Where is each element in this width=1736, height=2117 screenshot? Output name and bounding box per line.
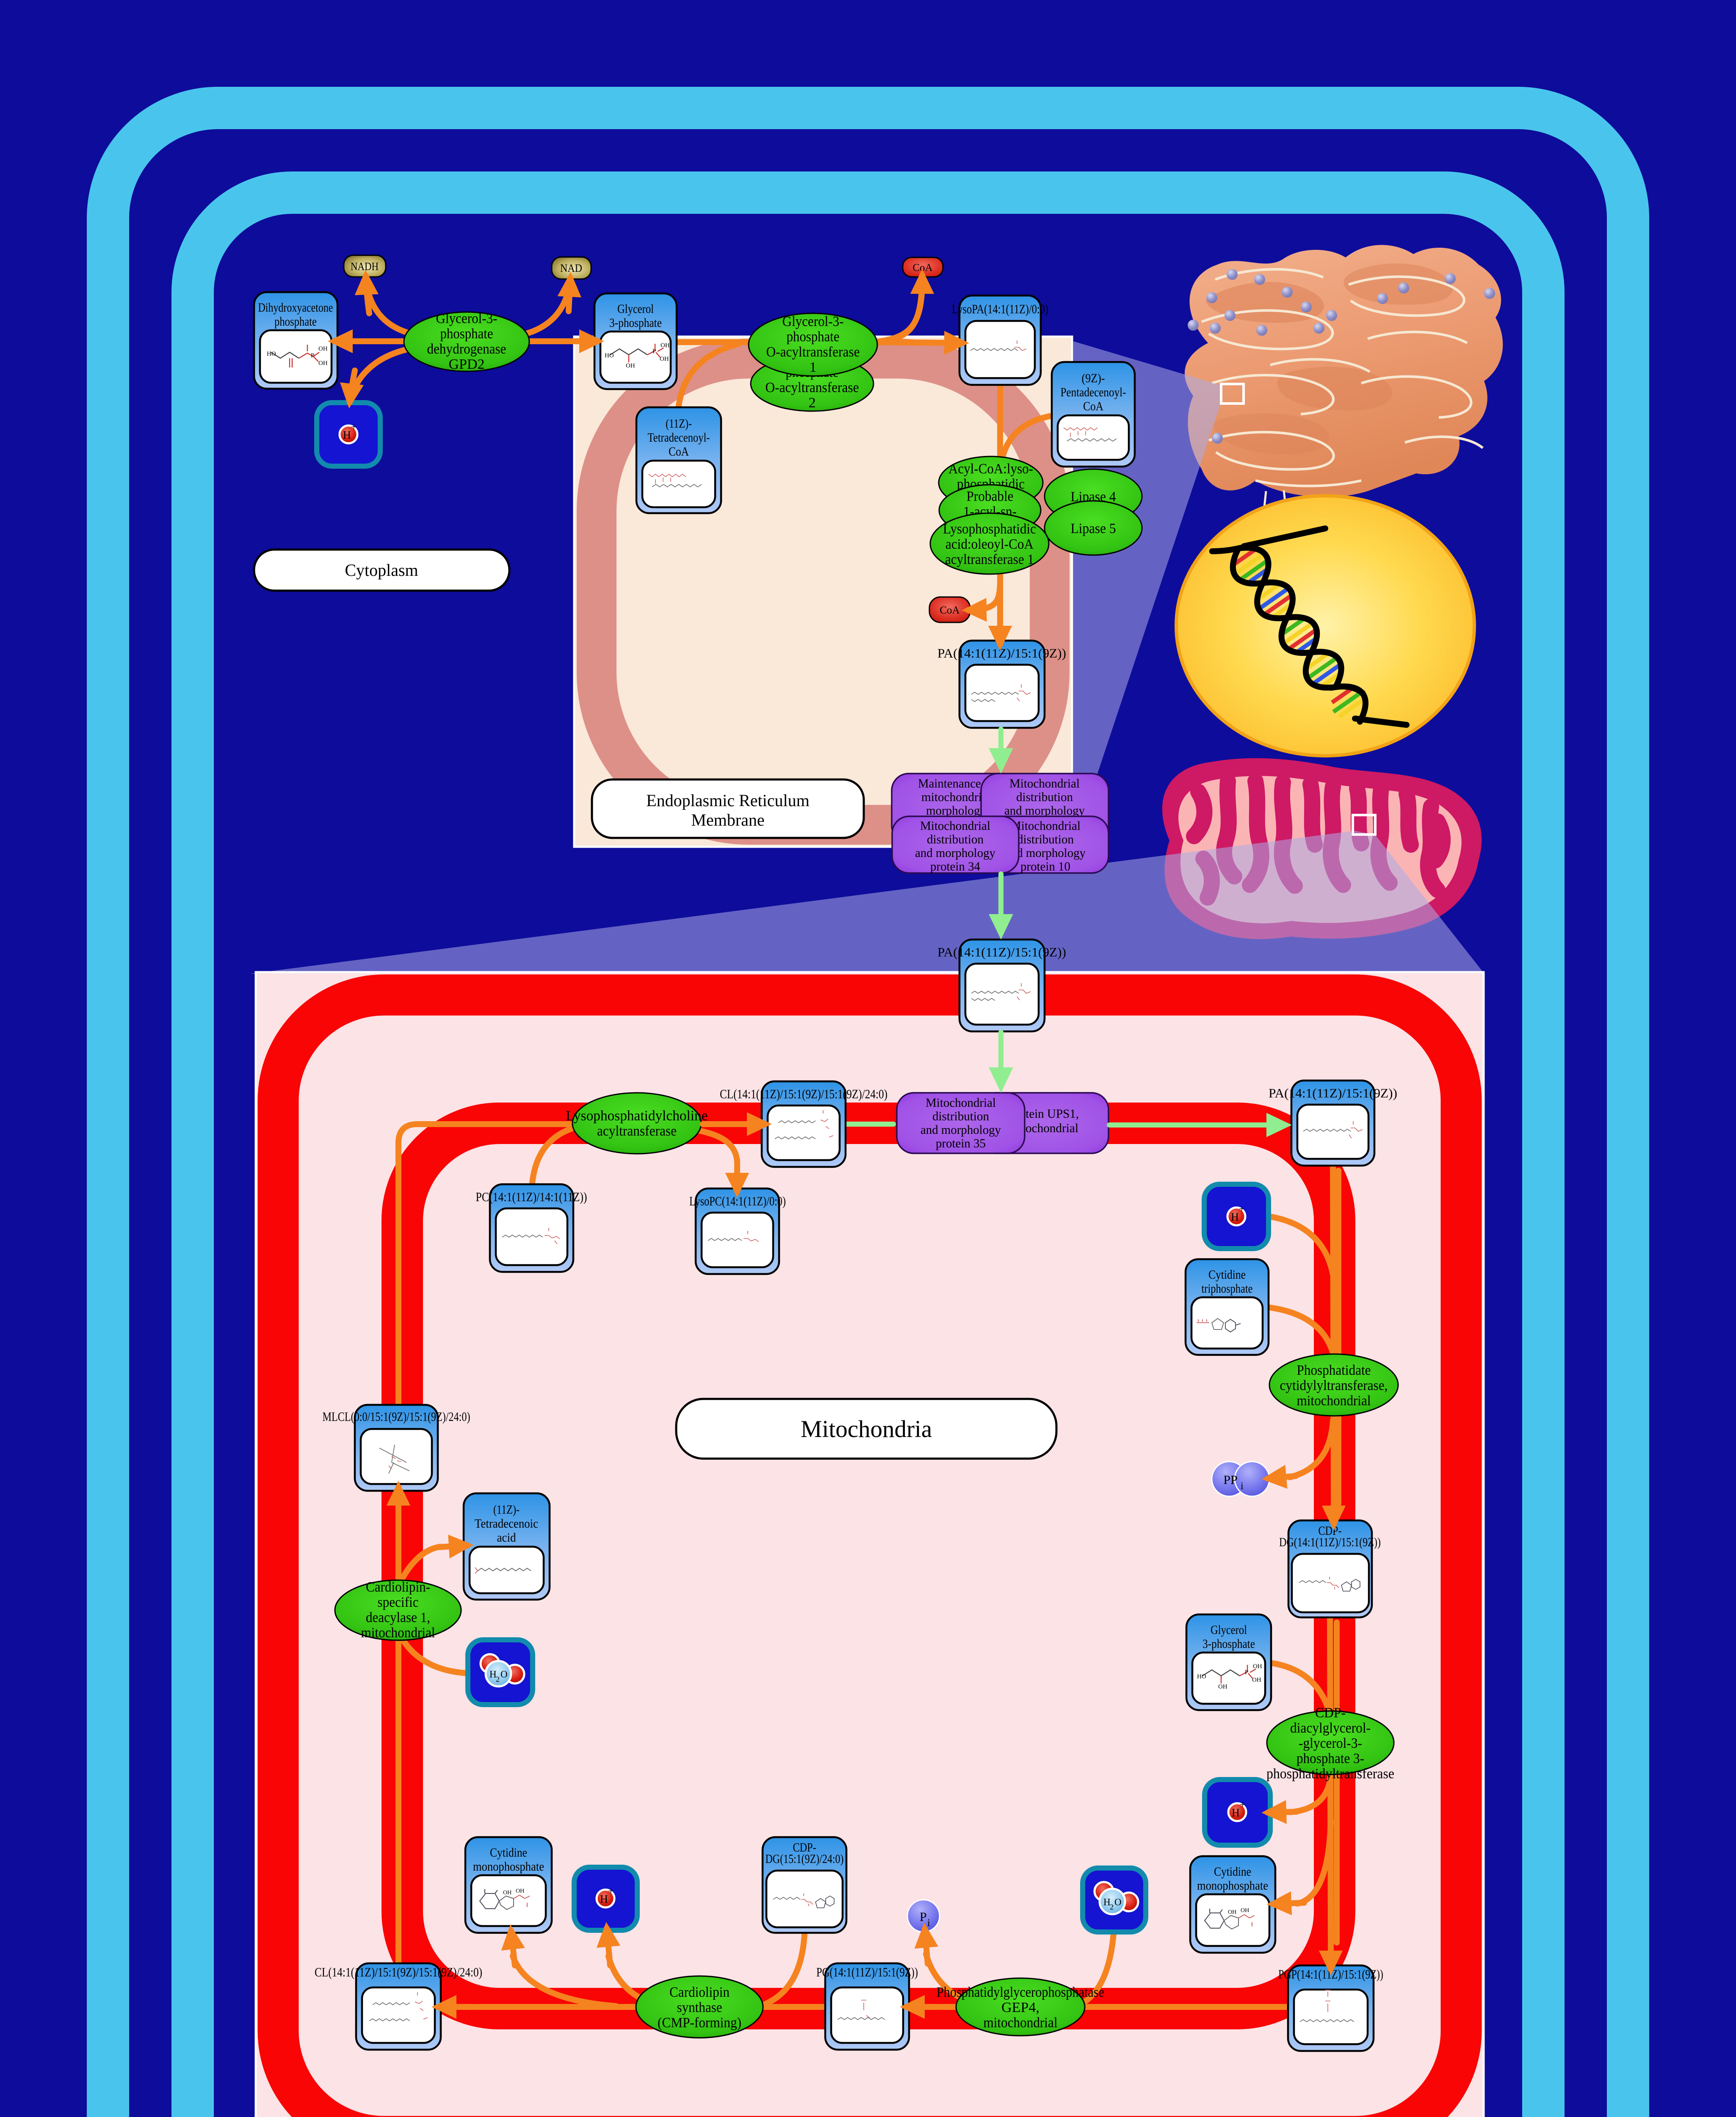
svg-text:phosphate: phosphate (787, 329, 840, 345)
svg-text:GEP4,: GEP4, (1001, 2000, 1039, 2015)
svg-text:HO: HO (267, 351, 276, 357)
svg-text:phosphate: phosphate (440, 326, 493, 342)
svg-text:O-acyltransferase: O-acyltransferase (766, 380, 859, 395)
svg-text:+: + (1240, 1799, 1246, 1810)
svg-text:phosphate: phosphate (274, 315, 317, 329)
svg-text:(CMP-forming): (CMP-forming) (658, 2015, 741, 2031)
svg-text:specific: specific (378, 1595, 419, 1610)
svg-text:distribution: distribution (927, 832, 984, 846)
svg-text:O: O (500, 1669, 508, 1680)
svg-text:monophosphate: monophosphate (1197, 1879, 1268, 1893)
svg-text:and morphology: and morphology (921, 1123, 1001, 1137)
svg-text:P: P (652, 348, 656, 355)
svg-text:OH: OH (1218, 1683, 1227, 1690)
svg-text:mitochondrial: mitochondrial (361, 1625, 435, 1641)
svg-text:phosphate 3-: phosphate 3- (1296, 1751, 1364, 1766)
svg-text:OH: OH (661, 342, 670, 349)
svg-text:distribution: distribution (1016, 790, 1073, 804)
svg-text:PA(14:1(11Z)/15:1(9Z)): PA(14:1(11Z)/15:1(9Z)) (1269, 1086, 1397, 1100)
svg-text:Tetradecenoic: Tetradecenoic (475, 1517, 538, 1531)
svg-text:-glycerol-3-: -glycerol-3- (1299, 1736, 1362, 1751)
svg-text:distribution: distribution (932, 1109, 989, 1123)
svg-text:Probable: Probable (967, 489, 1014, 504)
svg-text:Mitochondrial: Mitochondrial (926, 1096, 996, 1110)
svg-text:H: H (343, 429, 351, 441)
svg-text:acid: acid (497, 1531, 516, 1545)
svg-text:P: P (311, 352, 314, 359)
svg-text:CoA: CoA (669, 445, 689, 459)
svg-text:PG(14:1(11Z)/15:1(9Z)): PG(14:1(11Z)/15:1(9Z)) (816, 1965, 918, 1979)
svg-text:LysoPA(14:1(11Z)/0:0): LysoPA(14:1(11Z)/0:0) (952, 301, 1048, 316)
svg-text:morphology: morphology (926, 804, 986, 818)
svg-text:O: O (1114, 1897, 1122, 1907)
svg-text:distribution: distribution (1017, 832, 1074, 846)
svg-text:Endoplasmic Reticulum: Endoplasmic Reticulum (646, 791, 810, 810)
svg-text:3-phosphate: 3-phosphate (1202, 1637, 1255, 1651)
svg-text:HO: HO (605, 352, 614, 359)
svg-text:and morphology: and morphology (1004, 804, 1085, 818)
svg-text:Phosphatidylglycerophosphatase: Phosphatidylglycerophosphatase (937, 1984, 1104, 2000)
svg-text:2: 2 (809, 395, 816, 411)
svg-text:synthase: synthase (677, 2000, 722, 2015)
svg-text:acid:oleoyl-CoA: acid:oleoyl-CoA (945, 536, 1034, 552)
svg-text:PA(14:1(11Z)/15:1(9Z)): PA(14:1(11Z)/15:1(9Z)) (937, 646, 1066, 661)
svg-text:+: + (1239, 1204, 1245, 1215)
svg-text:Glycerol-3-: Glycerol-3- (782, 314, 844, 329)
svg-text:OH: OH (503, 1890, 511, 1896)
svg-text:(11Z)-: (11Z)- (493, 1503, 520, 1517)
svg-text:(11Z)-: (11Z)- (666, 417, 692, 431)
svg-text:protein 35: protein 35 (936, 1136, 986, 1150)
svg-text:acyltransferase 1: acyltransferase 1 (945, 552, 1034, 567)
svg-text:dehydrogenase: dehydrogenase (427, 341, 506, 357)
svg-text:Mitochondrial: Mitochondrial (1010, 819, 1081, 833)
svg-text:HO: HO (1197, 1673, 1206, 1680)
svg-text:diacylglycerol-: diacylglycerol- (1290, 1720, 1371, 1736)
svg-text:Cytidine: Cytidine (1214, 1865, 1251, 1879)
svg-text:Glycerol: Glycerol (1211, 1623, 1247, 1637)
svg-text:i: i (927, 1918, 930, 1929)
svg-text:H: H (1232, 1807, 1240, 1819)
svg-text:monophosphate: monophosphate (473, 1860, 544, 1874)
svg-text:+: + (608, 1886, 614, 1897)
svg-text:LysoPC(14:1(11Z)/0:0): LysoPC(14:1(11Z)/0:0) (689, 1194, 786, 1208)
svg-text:CoA: CoA (1083, 399, 1103, 413)
svg-text:Mitochondrial: Mitochondrial (1009, 777, 1080, 790)
svg-text:GPD2: GPD2 (448, 357, 484, 372)
svg-text:protein 34: protein 34 (930, 860, 980, 873)
svg-text:PP: PP (1223, 1473, 1237, 1487)
svg-text:Cardiolipin-: Cardiolipin- (366, 1579, 430, 1595)
svg-text:MLCL(0:0/15:1(9Z)/15:1(9Z)/24:: MLCL(0:0/15:1(9Z)/15:1(9Z)/24:0) (323, 1409, 470, 1424)
svg-text:P: P (1245, 1669, 1248, 1676)
svg-text:3-phosphate: 3-phosphate (609, 316, 662, 330)
svg-text:Mitochondria: Mitochondria (801, 1416, 932, 1443)
svg-text:mitochondrial: mitochondrial (984, 2015, 1058, 2031)
svg-text:phosphatidyltransferase: phosphatidyltransferase (1266, 1766, 1394, 1782)
svg-text:Acyl-CoA:lyso-: Acyl-CoA:lyso- (948, 461, 1033, 477)
svg-text:NAD: NAD (560, 262, 582, 274)
svg-text:OH: OH (318, 360, 328, 367)
svg-text:Lipase 5: Lipase 5 (1071, 521, 1116, 536)
svg-text:CoA: CoA (940, 605, 959, 616)
svg-text:Phosphatidate: Phosphatidate (1297, 1363, 1371, 1378)
svg-text:Mitochondrial: Mitochondrial (920, 819, 990, 833)
svg-text:Tetradecenoyl-: Tetradecenoyl- (648, 431, 710, 445)
svg-text:DG(14:1(11Z)/15:1(9Z)): DG(14:1(11Z)/15:1(9Z)) (1279, 1535, 1381, 1549)
svg-text:Cardiolipin: Cardiolipin (669, 1984, 730, 2000)
svg-text:mitochondrial: mitochondrial (1297, 1393, 1371, 1409)
svg-text:OH: OH (318, 345, 328, 352)
svg-text:OH: OH (1228, 1909, 1236, 1915)
svg-text:H: H (600, 1893, 608, 1905)
svg-text:CoA: CoA (912, 262, 932, 274)
svg-text:PC(14:1(11Z)/14:1(11Z)): PC(14:1(11Z)/14:1(11Z)) (476, 1189, 587, 1204)
svg-text:OH: OH (1252, 1677, 1261, 1683)
svg-text:CDP-: CDP- (1315, 1705, 1346, 1721)
svg-text:triphosphate: triphosphate (1202, 1282, 1253, 1296)
svg-text:Lysophosphatidic: Lysophosphatidic (943, 521, 1036, 537)
svg-text:+: + (351, 422, 357, 433)
svg-text:acyltransferase: acyltransferase (597, 1123, 677, 1139)
svg-text:OH: OH (1253, 1663, 1262, 1670)
svg-text:Dihydroxyacetone: Dihydroxyacetone (258, 301, 333, 315)
svg-text:CL(14:1(11Z)/15:1(9Z)/15:1(9Z): CL(14:1(11Z)/15:1(9Z)/15:1(9Z)/24:0) (315, 1965, 482, 1979)
svg-text:OH: OH (626, 362, 635, 369)
svg-text:Pentadecenoyl-: Pentadecenoyl- (1061, 385, 1126, 399)
svg-text:PA(14:1(11Z)/15:1(9Z)): PA(14:1(11Z)/15:1(9Z)) (937, 945, 1066, 959)
svg-text:Cytoplasm: Cytoplasm (345, 561, 418, 580)
svg-text:P: P (920, 1910, 927, 1924)
svg-text:NADH: NADH (351, 260, 379, 273)
svg-text:(9Z)-: (9Z)- (1082, 371, 1105, 385)
svg-text:Lysophosphatidylcholine: Lysophosphatidylcholine (566, 1108, 708, 1124)
svg-text:Membrane: Membrane (691, 810, 764, 829)
svg-text:Glycerol: Glycerol (617, 302, 654, 316)
svg-text:DG(15:1(9Z)/24:0): DG(15:1(9Z)/24:0) (766, 1852, 844, 1866)
svg-text:and morphology: and morphology (915, 846, 995, 860)
svg-text:H: H (1231, 1211, 1239, 1223)
svg-text:CL(14:1(11Z)/15:1(9Z)/15:1(9Z): CL(14:1(11Z)/15:1(9Z)/15:1(9Z)/24:0) (720, 1086, 887, 1101)
svg-text:protein 10: protein 10 (1020, 860, 1070, 873)
svg-text:Cytidine: Cytidine (1208, 1268, 1246, 1282)
svg-text:Cytidine: Cytidine (490, 1846, 527, 1860)
svg-text:Glycerol-3-: Glycerol-3- (436, 311, 498, 326)
svg-text:1: 1 (810, 359, 817, 375)
svg-text:OH: OH (660, 356, 669, 362)
svg-text:2: 2 (496, 1675, 500, 1683)
svg-text:O-acyltransferase: O-acyltransferase (766, 344, 860, 360)
svg-text:OH: OH (1241, 1907, 1249, 1914)
svg-text:2: 2 (1110, 1903, 1114, 1911)
svg-text:cytidylyltransferase,: cytidylyltransferase, (1280, 1378, 1388, 1393)
svg-text:deacylase 1,: deacylase 1, (366, 1610, 430, 1625)
svg-text:OH: OH (516, 1888, 524, 1894)
svg-text:i: i (1241, 1481, 1244, 1492)
